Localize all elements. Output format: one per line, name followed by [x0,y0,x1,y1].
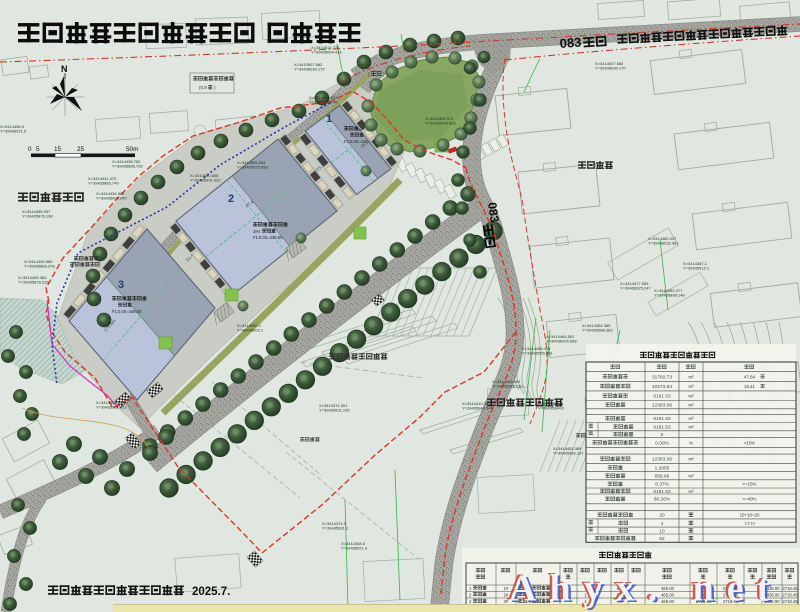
svg-text:62: 62 [659,536,665,542]
svg-text:Y=39435896.728: Y=39435896.728 [112,164,143,169]
svg-text:2718.45: 2718.45 [782,599,798,604]
svg-text:Y=39435921.0: Y=39435921.0 [0,129,27,134]
svg-text:Y=39435912.1: Y=39435912.1 [683,266,710,271]
svg-text:15.41: 15.41 [744,384,756,389]
svg-text:m²: m² [688,474,694,479]
svg-text:2718.45: 2718.45 [782,586,798,591]
svg-text:m²: m² [688,424,694,429]
svg-text:Y=39435883.749: Y=39435883.749 [88,181,119,186]
svg-text:2718.45: 2718.45 [782,592,798,597]
svg-text:12383.06: 12383.06 [652,402,672,408]
svg-text:N: N [61,64,68,74]
svg-text:0: 0 [661,432,664,438]
svg-text:25: 25 [77,146,85,153]
svg-text:1.5 10: 1.5 10 [744,522,755,526]
svg-text:858.69: 858.69 [655,474,670,480]
svg-text:Y=39435931.1: Y=39435931.1 [322,526,349,531]
svg-text:5: 5 [36,146,40,153]
svg-text:6191.53: 6191.53 [653,394,671,400]
svg-text:<10%: <10% [744,440,755,445]
svg-text:Y=39436030.170: Y=39436030.170 [595,66,626,71]
svg-text:1.2055: 1.2055 [655,465,670,471]
svg-text:Y=39435861.813: Y=39435861.813 [96,405,127,410]
svg-text:m²: m² [688,374,694,379]
svg-text:0.00%: 0.00% [655,440,669,446]
svg-text:<=15%: <=15% [743,482,757,487]
svg-text:8.37%: 8.37% [655,482,669,488]
svg-text:m²: m² [688,457,694,462]
svg-text:m²: m² [688,394,694,399]
svg-text:0: 0 [28,146,32,153]
svg-text:083: 083 [559,35,582,51]
svg-text:083: 083 [485,201,502,223]
svg-text:Y=39435925.058: Y=39435925.058 [237,165,268,170]
svg-text:>=40%: >=40% [743,497,757,502]
svg-text:Y=39435988.383: Y=39435988.383 [582,328,613,333]
svg-text:6191.53: 6191.53 [653,424,671,430]
svg-text:Y=39435921.0: Y=39435921.0 [341,546,368,551]
svg-text:Y=39435878.316: Y=39435878.316 [18,280,49,285]
svg-text:Y=39435931.022: Y=39435931.022 [190,178,221,183]
svg-text:Y=39435944.544: Y=39435944.544 [462,406,493,411]
svg-text:(0.8: (0.8 [199,85,207,90]
svg-text:F1:0.00=446.50: F1:0.00=446.50 [253,235,283,240]
svg-text:10+10=20: 10+10=20 [740,513,760,518]
svg-text:Y=39435905.603: Y=39435905.603 [425,121,456,126]
svg-text:20: 20 [659,513,665,519]
svg-text:Y=39435898.148: Y=39435898.148 [654,293,685,298]
svg-text:Y=39435883.378: Y=39435883.378 [24,264,55,269]
svg-text:Y=39435902.1: Y=39435902.1 [237,328,264,333]
svg-text:%: % [689,440,693,445]
svg-text:Y=39436004.414: Y=39436004.414 [311,50,342,55]
svg-text:m²: m² [688,384,694,389]
svg-text:Y=39436032.981: Y=39436032.981 [648,241,679,246]
svg-text:3: 3 [118,279,124,291]
svg-text:1: 1 [326,113,332,125]
svg-text:F1:0.00=448.00: F1:0.00=448.00 [112,309,142,314]
svg-text:Y=39435994.46: Y=39435994.46 [309,100,338,105]
svg-text:10: 10 [659,528,665,534]
svg-text:Y=39435982.187: Y=39435982.187 [553,451,584,456]
svg-text:Y=39435955.381: Y=39435955.381 [522,351,553,356]
svg-text:Y=39435876.198: Y=39435876.198 [22,214,53,219]
svg-text:Ahyx. net: Ahyx. net [509,568,782,610]
svg-text:Y=39436005.568: Y=39436005.568 [546,339,577,344]
svg-text:Y=39436030.172: Y=39436030.172 [294,67,325,72]
svg-text:m²: m² [688,489,694,494]
svg-text:3#4: 3#4 [253,229,261,234]
svg-text:Y=39435988.730: Y=39435988.730 [492,384,523,389]
svg-text:6191.53: 6191.53 [653,489,671,495]
svg-text:50m: 50m [126,146,138,153]
svg-text:6191.53: 6191.53 [653,416,671,422]
svg-text:m²: m² [688,402,694,407]
svg-text:10273.94: 10273.94 [652,384,672,390]
svg-text:2: 2 [228,193,234,205]
svg-text:4: 4 [661,521,664,527]
svg-text:12383.06: 12383.06 [652,457,672,463]
svg-text:Y=39435931.195: Y=39435931.195 [319,408,350,413]
svg-text:Y=39435900.240: Y=39435900.240 [96,196,127,201]
svg-text:m²: m² [688,416,694,421]
svg-text:31760.73: 31760.73 [652,374,672,380]
svg-text:Y=39436025.247: Y=39436025.247 [620,286,651,291]
svg-text:15: 15 [54,146,62,153]
svg-text:60.26%: 60.26% [654,497,671,503]
svg-text:2025.7.: 2025.7. [192,586,230,598]
svg-text:47.64: 47.64 [744,374,756,379]
